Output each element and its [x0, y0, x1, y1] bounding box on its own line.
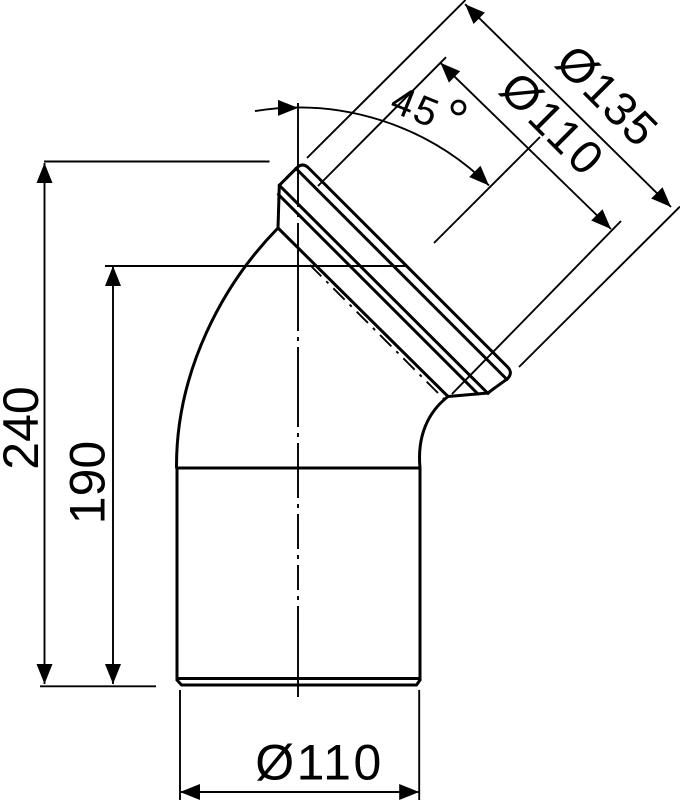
- svg-text:Ø110: Ø110: [255, 735, 384, 791]
- svg-text:240: 240: [0, 386, 49, 469]
- svg-text:190: 190: [60, 441, 116, 524]
